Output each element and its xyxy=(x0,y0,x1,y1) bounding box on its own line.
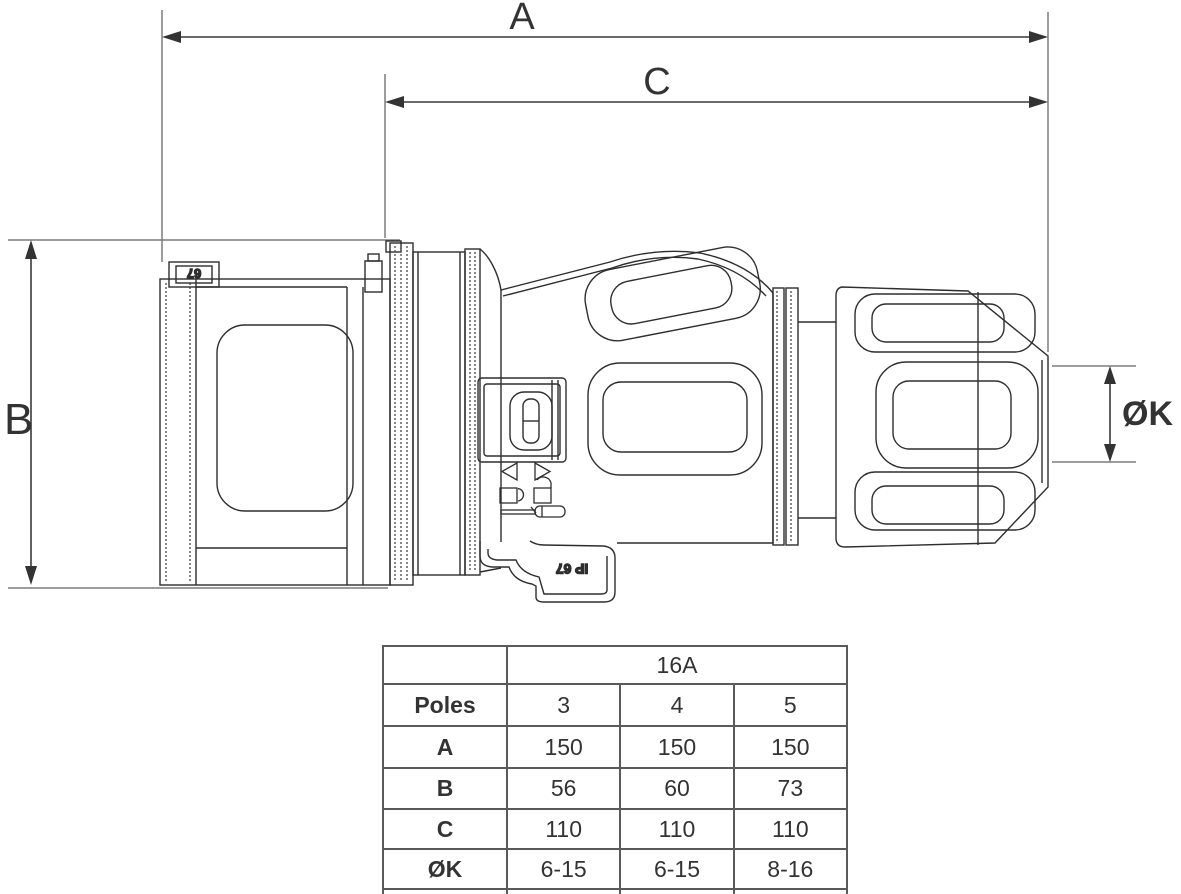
lock-indicator xyxy=(500,463,565,517)
row-label-a: A xyxy=(383,726,507,768)
arrowhead-left-icon xyxy=(385,96,404,108)
padlock-open-icon xyxy=(500,488,524,503)
row-label-c: C xyxy=(383,809,507,849)
neck xyxy=(798,322,836,518)
k-value-cell: 8-16 xyxy=(734,849,847,889)
connector-drawing: 67 xyxy=(160,241,1048,602)
c-value-cell: 110 xyxy=(507,809,620,849)
a-value-cell: 150 xyxy=(507,726,620,768)
extension-lines xyxy=(8,10,1136,588)
screwdriver-icon xyxy=(501,506,565,517)
latch-slider xyxy=(478,378,566,462)
dimension-c: C xyxy=(385,61,1048,108)
triangle-left-icon xyxy=(502,463,517,480)
b-value-cell: 73 xyxy=(734,768,847,809)
table-row-b: B 56 60 73 xyxy=(383,768,847,809)
arrowhead-left-icon xyxy=(162,31,181,43)
dim-c-label: C xyxy=(643,61,670,103)
b-value-cell: 56 xyxy=(507,768,620,809)
amp-header-cell: 16A xyxy=(507,646,847,684)
dimension-k: ØK xyxy=(1104,366,1173,462)
ribbed-ring xyxy=(773,288,798,545)
k-value-cell: 6-15 xyxy=(507,849,620,889)
gland-recess-middle xyxy=(876,362,1038,468)
connector-dimension-drawing: A C B ØK xyxy=(0,0,1181,660)
dim-k-label: ØK xyxy=(1122,395,1173,433)
k-value-cell: 6-15 xyxy=(620,849,733,889)
cap-rating-tab: 67 xyxy=(169,262,219,287)
poles-value-cell: 5 xyxy=(734,684,847,726)
hinge-pin xyxy=(365,261,382,292)
arrowhead-right-icon xyxy=(1029,96,1048,108)
poles-value-cell: 3 xyxy=(507,684,620,726)
table-row-c: C 110 110 110 xyxy=(383,809,847,849)
c-value-cell: 110 xyxy=(734,809,847,849)
table-row-a: A 150 150 150 xyxy=(383,726,847,768)
table-row-clipped xyxy=(383,889,847,894)
cable-gland xyxy=(836,287,1048,547)
table-corner-cell xyxy=(383,646,507,684)
c-value-cell: 110 xyxy=(620,809,733,849)
body-rating-label: IP 67 xyxy=(556,561,589,577)
padlock-closed-icon xyxy=(534,477,551,503)
dimension-b: B xyxy=(4,240,37,585)
row-label-b: B xyxy=(383,768,507,809)
table-row-k: ØK 6-15 6-15 8-16 xyxy=(383,849,847,889)
arrowhead-up-icon xyxy=(25,240,37,259)
technical-drawing-page: A C B ØK xyxy=(0,0,1181,894)
protective-cap: 67 xyxy=(160,254,390,585)
connector-body: IP 67 xyxy=(478,242,773,602)
b-value-cell: 60 xyxy=(620,768,733,809)
dimension-a: A xyxy=(162,0,1048,43)
arrowhead-down-icon xyxy=(25,566,37,585)
handle-recess xyxy=(580,242,766,346)
arrowhead-up-icon xyxy=(1104,366,1116,384)
dimension-table: 16A Poles 3 4 5 A 150 150 150 B 56 6 xyxy=(382,645,849,894)
dim-b-label: B xyxy=(4,395,33,444)
cap-window xyxy=(217,325,353,511)
gland-recess-bottom xyxy=(855,472,1035,530)
a-value-cell: 150 xyxy=(734,726,847,768)
table-row-amp-header: 16A xyxy=(383,646,847,684)
row-label-poles: Poles xyxy=(383,684,507,726)
mounting-bracket: IP 67 xyxy=(480,541,615,602)
arrowhead-down-icon xyxy=(1104,444,1116,462)
grip-recess xyxy=(588,363,762,475)
arrowhead-right-icon xyxy=(1029,31,1048,43)
cap-rating-label: 67 xyxy=(187,266,201,281)
row-label-k: ØK xyxy=(383,849,507,889)
dim-a-label: A xyxy=(509,0,535,38)
poles-value-cell: 4 xyxy=(620,684,733,726)
a-value-cell: 150 xyxy=(620,726,733,768)
table-row-poles: Poles 3 4 5 xyxy=(383,684,847,726)
locking-collar xyxy=(386,241,480,585)
